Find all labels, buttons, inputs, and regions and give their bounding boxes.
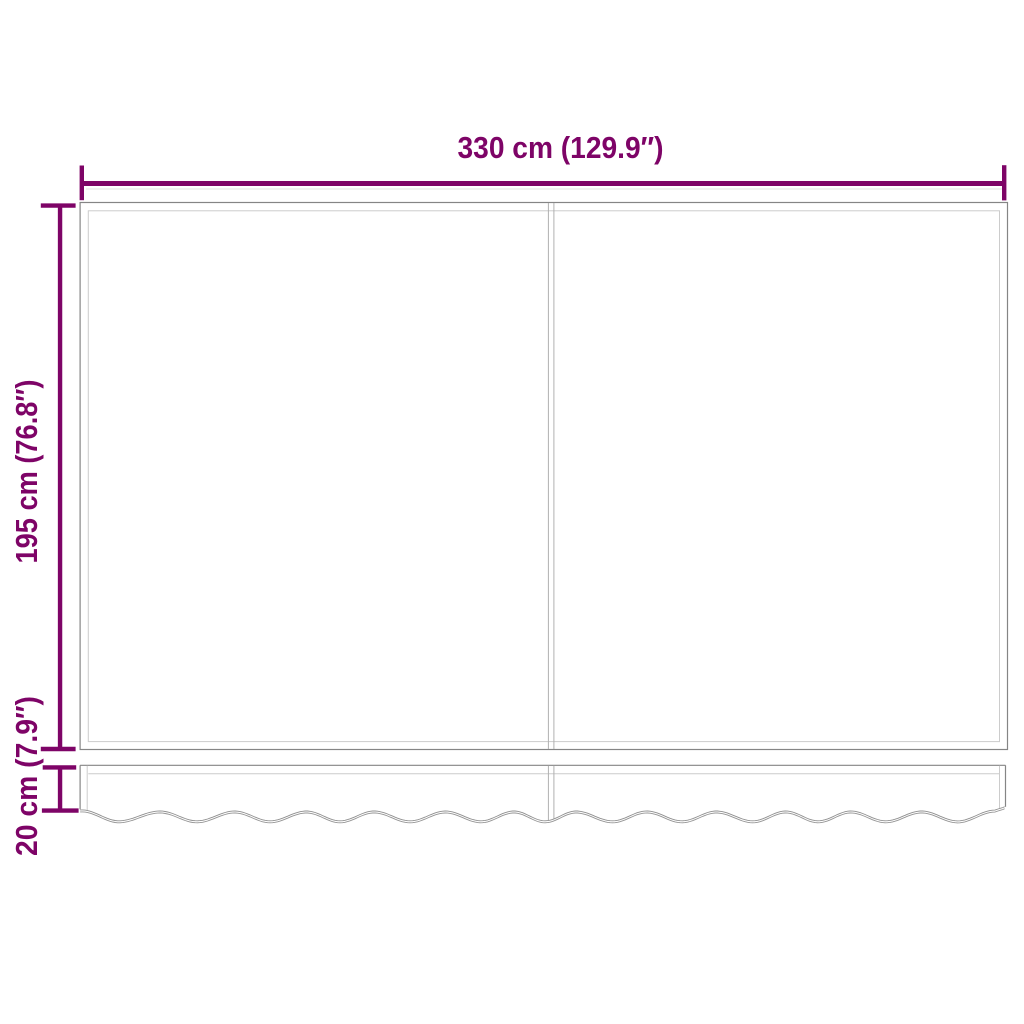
svg-text:330 cm (129.9″): 330 cm (129.9″) bbox=[458, 130, 664, 165]
svg-text:195 cm (76.8″): 195 cm (76.8″) bbox=[9, 380, 44, 564]
svg-text:20 cm (7.9″): 20 cm (7.9″) bbox=[9, 696, 44, 856]
